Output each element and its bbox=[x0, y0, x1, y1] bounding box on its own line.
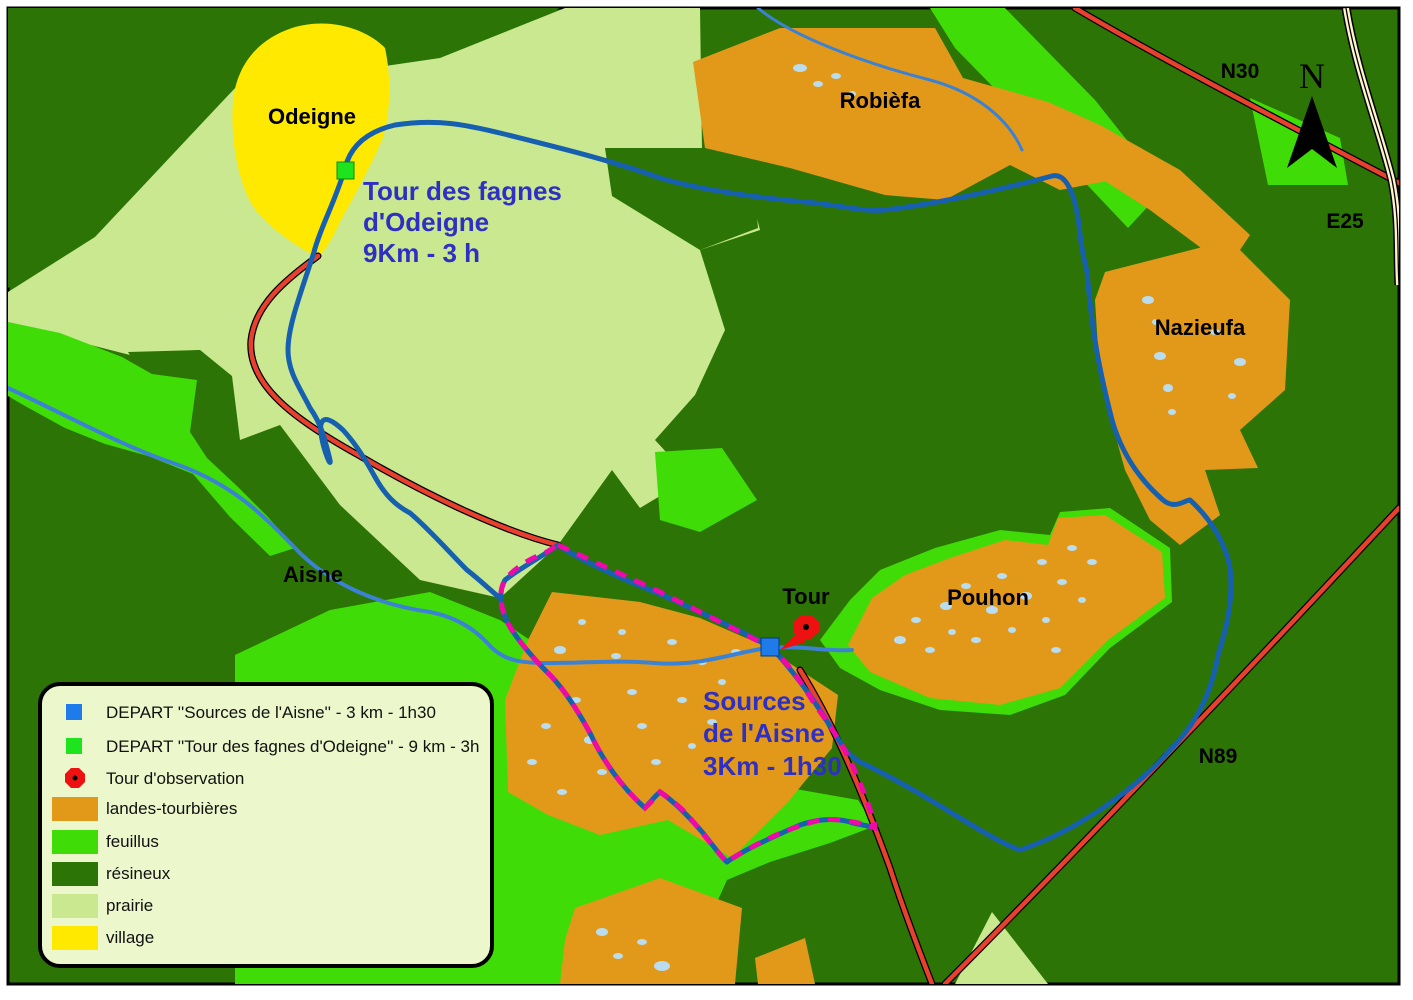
legend: DEPART ''Sources de l'Aisne'' - 3 km - 1… bbox=[40, 684, 492, 966]
legend-resineux-label: résineux bbox=[106, 864, 171, 883]
label-odeigne: Odeigne bbox=[268, 104, 356, 129]
trail-map: Odeigne Robièfa Nazieufa Pouhon Aisne To… bbox=[0, 0, 1413, 1000]
odeigne-trail-line2: d'Odeigne bbox=[363, 207, 489, 237]
north-letter: N bbox=[1299, 56, 1325, 96]
label-robiefa: Robièfa bbox=[840, 88, 921, 113]
legend-depart-odeigne-label: DEPART ''Tour des fagnes d'Odeigne'' - 9… bbox=[106, 737, 479, 756]
legend-tower-icon bbox=[65, 768, 85, 788]
legend-prairie-swatch bbox=[52, 894, 98, 918]
map-page: { "colors": { "resineux": "#2b7405", "fe… bbox=[0, 0, 1413, 1000]
legend-resineux-swatch bbox=[52, 862, 98, 886]
odeigne-trail-line3: 9Km - 3 h bbox=[363, 238, 480, 268]
label-e25: E25 bbox=[1326, 210, 1364, 233]
label-pouhon: Pouhon bbox=[947, 585, 1029, 610]
legend-feuillus-swatch bbox=[52, 830, 98, 854]
legend-tower-label: Tour d'observation bbox=[106, 769, 244, 788]
depart-sources-marker bbox=[761, 638, 779, 656]
legend-landes-swatch bbox=[52, 797, 98, 821]
label-n89: N89 bbox=[1199, 745, 1238, 768]
legend-prairie-label: prairie bbox=[106, 896, 153, 915]
label-nazieufa: Nazieufa bbox=[1155, 315, 1246, 340]
sources-trail-line3: 3Km - 1h30 bbox=[703, 751, 842, 781]
legend-depart-sources-label: DEPART ''Sources de l'Aisne'' - 3 km - 1… bbox=[106, 703, 436, 722]
legend-depart-odeigne-swatch bbox=[66, 738, 82, 754]
legend-village-label: village bbox=[106, 928, 154, 947]
depart-odeigne-marker bbox=[337, 162, 354, 179]
label-n30: N30 bbox=[1221, 60, 1260, 83]
label-tour: Tour bbox=[782, 584, 830, 609]
sources-trail-line1: Sources bbox=[703, 686, 806, 716]
legend-landes-label: landes-tourbières bbox=[106, 799, 237, 818]
legend-depart-sources-swatch bbox=[66, 704, 82, 720]
legend-box bbox=[40, 684, 492, 966]
label-aisne-river: Aisne bbox=[283, 562, 343, 587]
sources-trail-line2: de l'Aisne bbox=[703, 718, 825, 748]
legend-village-swatch bbox=[52, 926, 98, 950]
odeigne-trail-line1: Tour des fagnes bbox=[363, 176, 562, 206]
observation-tower-marker bbox=[793, 615, 819, 639]
legend-feuillus-label: feuillus bbox=[106, 832, 159, 851]
